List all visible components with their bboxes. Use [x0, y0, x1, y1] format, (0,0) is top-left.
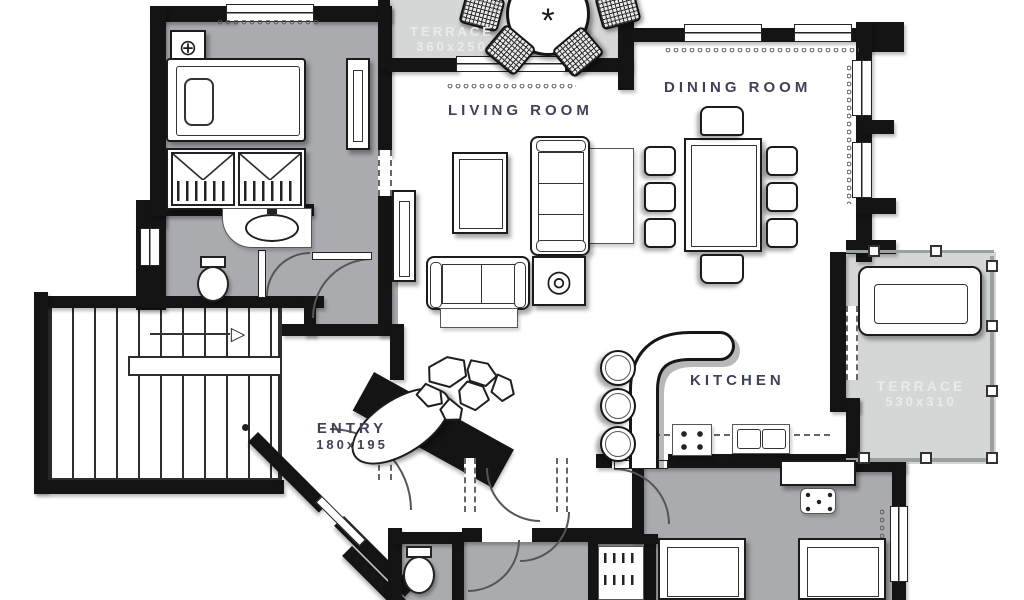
wall: [830, 252, 846, 404]
room-label-size: 180x195: [300, 437, 404, 452]
room-label-text: TERRACE: [856, 378, 986, 394]
sofa-cushion: [538, 183, 584, 215]
bed-mattress: [807, 547, 879, 597]
curtain-symbol: [446, 84, 576, 92]
door-leaf: [258, 250, 266, 298]
toilet-bowl: [403, 556, 435, 594]
hanger-symbol: [173, 154, 233, 180]
side-table: ◎: [532, 256, 586, 306]
stove: [672, 424, 712, 456]
dining-chair: [700, 254, 744, 284]
door-leaf: [312, 252, 372, 260]
terrace-bench-seat: [874, 284, 968, 324]
terrace-chair: [594, 0, 641, 31]
terrace-right-label: TERRACE 530x310: [856, 378, 986, 409]
sink: [245, 214, 299, 242]
window: [794, 24, 852, 42]
room-label-text: KITCHEN: [690, 372, 785, 389]
wardrobe-cell: [238, 152, 302, 206]
loveseat-base: [440, 308, 518, 328]
wall: [390, 324, 404, 380]
dashed-opening: [846, 306, 858, 380]
wardrobe-cell: [171, 152, 235, 206]
hanger-symbol: [240, 154, 300, 180]
entry-label: ENTRY 180x195: [300, 420, 404, 452]
wall: [588, 544, 598, 600]
wall: [856, 198, 896, 214]
wall: [150, 6, 166, 226]
shelf-contents: [604, 575, 636, 585]
dining-room-label: DINING ROOM: [664, 79, 811, 96]
room-label-text: LIVING ROOM: [448, 102, 593, 119]
tall-cabinet: [346, 58, 370, 150]
dining-table-top: [691, 145, 757, 247]
bar-stool: [600, 350, 636, 386]
kitchen-label: KITCHEN: [690, 372, 785, 389]
dining-chair: [766, 182, 798, 212]
hanging-clothes-symbol: [244, 181, 296, 201]
dining-chair: [644, 146, 676, 176]
desk-chair: [800, 488, 836, 514]
room-label-size: 530x310: [856, 394, 986, 409]
cabinet-door-line: [353, 70, 363, 142]
railing-post: [920, 452, 932, 464]
window: [852, 60, 872, 116]
stairs-landing-rail: [128, 356, 282, 376]
window: [852, 142, 872, 198]
coffee-table: [452, 152, 508, 234]
sofa-armrest: [536, 140, 586, 152]
railing-post: [858, 452, 870, 464]
desk: [780, 460, 856, 486]
wall: [588, 534, 658, 544]
bar-stool: [600, 426, 636, 462]
curtain-symbol: [216, 20, 320, 28]
shelf-contents: [604, 553, 636, 563]
wall: [452, 532, 464, 600]
terrace-top-label: TERRACE 360x250: [400, 24, 504, 54]
loveseat-armrest: [514, 262, 526, 308]
bed-pillow: [184, 78, 214, 126]
bar-stool-seat: [605, 431, 631, 457]
dining-chair: [644, 182, 676, 212]
dining-chair: [700, 106, 744, 136]
loveseat-armrest: [430, 262, 442, 308]
wall: [388, 58, 458, 72]
bed-mattress: [667, 547, 739, 597]
bathroom-vanity: [222, 208, 312, 248]
window: [890, 506, 908, 582]
bar-stool: [600, 388, 636, 424]
wall: [378, 196, 392, 336]
wall: [860, 120, 894, 134]
stairs-direction-line: [150, 333, 230, 335]
coffee-table-top: [459, 159, 503, 229]
closet-shelves: [598, 546, 644, 600]
bed: [658, 538, 746, 600]
toilet: [400, 546, 438, 596]
wall: [644, 540, 656, 600]
room-label-text: TERRACE: [400, 24, 504, 39]
railing-post: [986, 385, 998, 397]
railing-post: [930, 245, 942, 257]
toilet: [194, 256, 232, 304]
tv-cabinet-line: [399, 201, 410, 277]
living-room-label: LIVING ROOM: [448, 102, 593, 119]
terrace-railing: [990, 256, 994, 464]
sofa-armrest: [536, 240, 586, 252]
room-label-size: 360x250: [400, 39, 504, 54]
toilet-bowl: [197, 266, 229, 302]
window: [140, 228, 160, 266]
sink-basin: [762, 429, 786, 449]
stairs-arrow-icon: ▷: [226, 322, 250, 346]
railing-post: [868, 245, 880, 257]
wall: [34, 480, 284, 494]
stairs-end-dot: [242, 424, 249, 431]
bar-stool-seat: [605, 393, 631, 419]
room-label-text: DINING ROOM: [664, 79, 811, 96]
dashed-opening: [378, 150, 392, 196]
wardrobe: [166, 148, 306, 210]
sink-basin: [737, 429, 761, 449]
tv-cabinet: [392, 190, 416, 282]
bed: [798, 538, 886, 600]
bar-stool-seat: [605, 355, 631, 381]
wall: [34, 296, 324, 308]
loveseat-cushion: [442, 264, 482, 304]
dining-chair: [766, 218, 798, 248]
sofa-three-seat: [530, 136, 590, 256]
railing-post: [986, 320, 998, 332]
sofa-cushion: [538, 152, 584, 184]
window: [684, 24, 762, 42]
curtain-symbol: [664, 48, 859, 56]
curtain-symbol: [847, 64, 855, 204]
terrace-bench: [858, 266, 982, 336]
bed: [166, 58, 306, 142]
faucet: [267, 209, 277, 214]
floor-plan: ▷: [0, 0, 1024, 600]
wall: [34, 292, 48, 492]
dashed-opening: [464, 458, 476, 512]
wall: [282, 324, 398, 336]
loveseat: [426, 256, 530, 310]
room-label-text: ENTRY: [300, 420, 404, 437]
kitchen-sink: [732, 424, 790, 454]
dining-table: [684, 138, 762, 252]
dining-chair: [644, 218, 676, 248]
railing-post: [986, 452, 998, 464]
hanging-clothes-symbol: [177, 181, 229, 201]
dashed-opening: [556, 458, 568, 512]
railing-post: [986, 260, 998, 272]
dining-chair: [766, 146, 798, 176]
